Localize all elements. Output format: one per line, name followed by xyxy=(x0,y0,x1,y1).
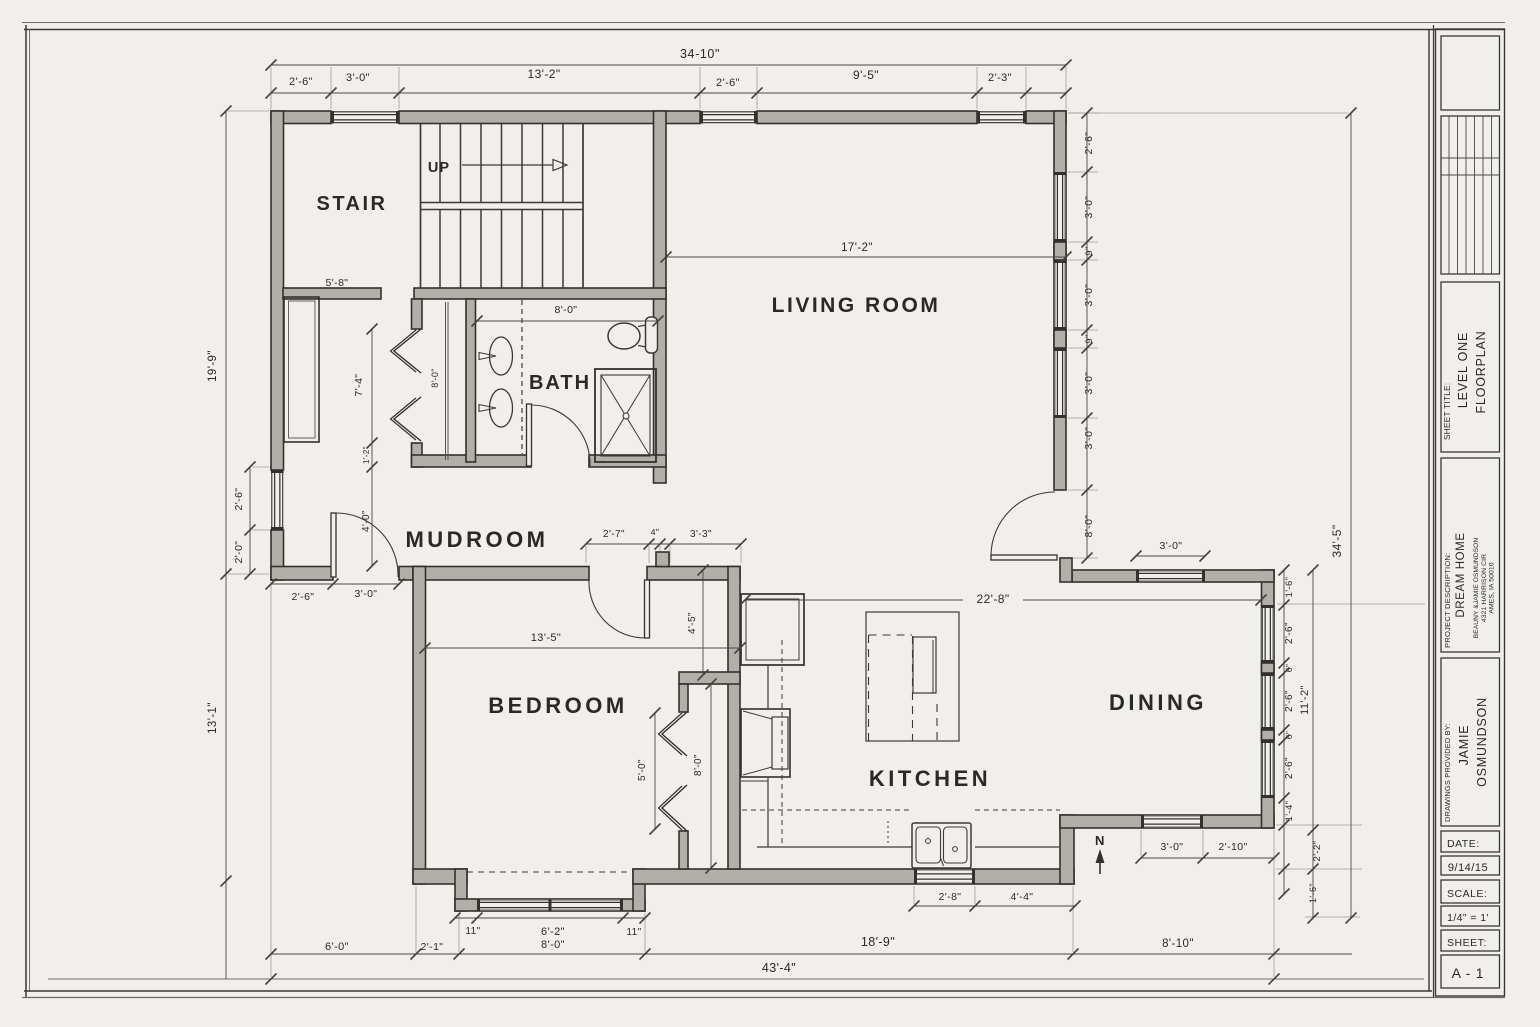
svg-text:BEAUNY &JAMIE OSMUNDSON: BEAUNY &JAMIE OSMUNDSON xyxy=(1473,538,1480,639)
svg-text:A - 1: A - 1 xyxy=(1452,965,1485,981)
svg-text:43'-4": 43'-4" xyxy=(762,961,796,975)
svg-text:3'-3": 3'-3" xyxy=(690,529,712,540)
svg-text:4": 4" xyxy=(651,527,660,537)
svg-text:3'-0": 3'-0" xyxy=(1160,540,1183,552)
svg-text:2'-6": 2'-6" xyxy=(1284,622,1295,644)
svg-text:13'-2": 13'-2" xyxy=(528,67,561,81)
svg-text:11'-2": 11'-2" xyxy=(1299,685,1311,715)
svg-text:4'-5": 4'-5" xyxy=(687,612,698,634)
svg-text:4'-0": 4'-0" xyxy=(361,510,372,532)
svg-text:13'-5": 13'-5" xyxy=(531,632,561,644)
svg-text:4321 HARRISON CIR: 4321 HARRISON CIR xyxy=(1481,554,1488,622)
svg-text:UP: UP xyxy=(428,160,450,176)
svg-text:N: N xyxy=(1095,833,1105,848)
svg-text:8'-0": 8'-0" xyxy=(430,368,440,387)
svg-text:2'-6": 2'-6" xyxy=(1284,690,1295,712)
svg-text:9'-5": 9'-5" xyxy=(853,68,879,82)
svg-text:19'-9": 19'-9" xyxy=(207,350,219,382)
svg-text:2'-2": 2'-2" xyxy=(1312,841,1323,862)
svg-text:3'-0": 3'-0" xyxy=(1083,284,1095,307)
svg-text:5'-0": 5'-0" xyxy=(637,759,648,781)
svg-text:2'-7": 2'-7" xyxy=(603,529,625,540)
svg-text:2'-3": 2'-3" xyxy=(988,72,1012,84)
svg-text:SHEET TITLE:: SHEET TITLE: xyxy=(1443,383,1452,440)
svg-text:1'-6": 1'-6" xyxy=(1284,577,1295,598)
svg-text:2'-10": 2'-10" xyxy=(1218,841,1247,853)
svg-text:8'-0": 8'-0" xyxy=(693,754,704,776)
svg-text:6": 6" xyxy=(1284,731,1294,740)
svg-text:2'-1": 2'-1" xyxy=(421,941,444,953)
svg-text:JAMIE: JAMIE xyxy=(1457,725,1471,766)
svg-text:8'-0": 8'-0" xyxy=(541,939,565,951)
svg-text:DRAWINGS PROVIDED BY:: DRAWINGS PROVIDED BY: xyxy=(1443,723,1452,822)
svg-text:LIVING ROOM: LIVING ROOM xyxy=(772,294,941,317)
svg-text:2'-6": 2'-6" xyxy=(716,77,740,89)
svg-text:2'-6": 2'-6" xyxy=(1083,132,1095,155)
svg-text:1/4" = 1': 1/4" = 1' xyxy=(1447,912,1489,924)
svg-text:3'-0": 3'-0" xyxy=(1083,196,1095,219)
svg-text:1'-6": 1'-6" xyxy=(1308,883,1318,903)
svg-text:9/14/15: 9/14/15 xyxy=(1448,862,1488,874)
svg-text:DREAM HOME: DREAM HOME xyxy=(1455,532,1467,617)
svg-text:9": 9" xyxy=(1084,246,1095,255)
svg-text:1'-4": 1'-4" xyxy=(1284,801,1295,822)
svg-text:8'-0": 8'-0" xyxy=(1083,515,1095,538)
svg-text:1'-2": 1'-2" xyxy=(362,446,371,464)
svg-text:34-10": 34-10" xyxy=(680,47,720,61)
svg-text:2'-6": 2'-6" xyxy=(289,76,313,88)
svg-text:KITCHEN: KITCHEN xyxy=(869,766,991,791)
svg-text:PROJECT DESCRIPTION:: PROJECT DESCRIPTION: xyxy=(1443,553,1452,648)
svg-text:BATH: BATH xyxy=(529,372,591,394)
svg-text:6'-2": 6'-2" xyxy=(541,926,565,938)
svg-text:OSMUNDSON: OSMUNDSON xyxy=(1475,697,1489,787)
svg-text:13'-1": 13'-1" xyxy=(207,702,219,734)
svg-text:9": 9" xyxy=(1084,334,1095,343)
svg-text:MUDROOM: MUDROOM xyxy=(405,527,548,552)
svg-text:SHEET:: SHEET: xyxy=(1447,937,1487,949)
svg-text:3'-0": 3'-0" xyxy=(355,588,378,600)
svg-text:11": 11" xyxy=(465,926,480,937)
svg-text:6'-0": 6'-0" xyxy=(325,941,349,953)
svg-text:2'-6": 2'-6" xyxy=(233,488,245,511)
svg-text:2'-0": 2'-0" xyxy=(233,541,245,564)
svg-text:4'-4": 4'-4" xyxy=(1011,891,1034,903)
svg-text:22'-8": 22'-8" xyxy=(977,592,1010,606)
svg-text:2'-6": 2'-6" xyxy=(292,591,315,603)
svg-text:8'-0": 8'-0" xyxy=(555,304,578,316)
svg-text:7'-4": 7'-4" xyxy=(353,374,365,397)
svg-text:DINING: DINING xyxy=(1109,690,1207,715)
svg-text:3'-0": 3'-0" xyxy=(1083,427,1095,450)
svg-text:AMES, IA 50010: AMES, IA 50010 xyxy=(1489,562,1496,613)
svg-text:6": 6" xyxy=(1284,664,1294,673)
svg-text:2'-8": 2'-8" xyxy=(939,891,962,903)
svg-text:5'-8": 5'-8" xyxy=(326,277,349,289)
svg-text:3'-0": 3'-0" xyxy=(1161,841,1184,853)
svg-text:18'-9": 18'-9" xyxy=(861,935,895,949)
svg-text:34'-5": 34'-5" xyxy=(1330,525,1344,558)
svg-text:STAIR: STAIR xyxy=(316,193,387,215)
svg-text:DATE:: DATE: xyxy=(1447,838,1480,850)
svg-text:FLOORPLAN: FLOORPLAN xyxy=(1474,331,1488,414)
svg-text:8'-10": 8'-10" xyxy=(1162,938,1194,950)
svg-text:3'-0": 3'-0" xyxy=(346,72,370,84)
svg-text:11": 11" xyxy=(626,927,641,938)
svg-text:3'-0": 3'-0" xyxy=(1083,372,1095,395)
svg-text:2'-6": 2'-6" xyxy=(1284,757,1295,779)
svg-text:LEVEL ONE: LEVEL ONE xyxy=(1456,332,1470,408)
svg-text:BEDROOM: BEDROOM xyxy=(488,693,627,718)
svg-text:17'-2": 17'-2" xyxy=(841,242,873,254)
svg-text:SCALE:: SCALE: xyxy=(1447,888,1487,900)
